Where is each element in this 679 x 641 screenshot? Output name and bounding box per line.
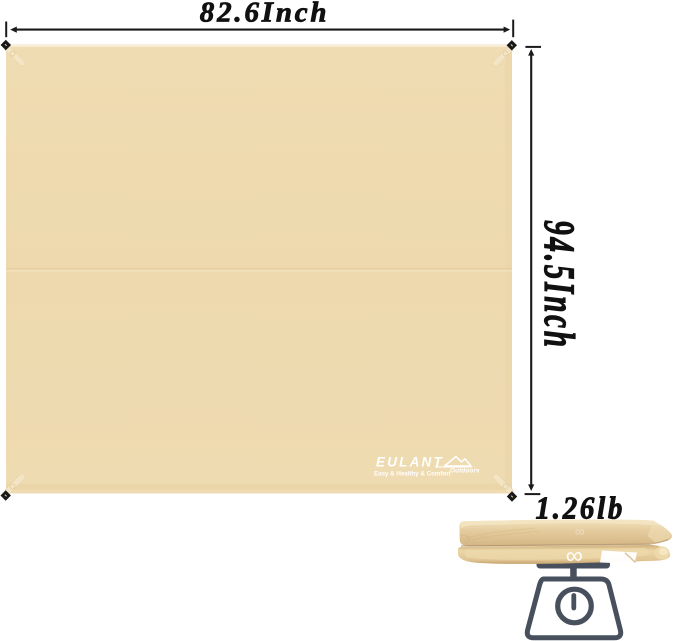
svg-text:Outdoors: Outdoors [450,468,480,475]
svg-text:EULANT: EULANT [376,455,444,470]
svg-text:Easy & Healthy & Comfort: Easy & Healthy & Comfort [374,471,451,478]
svg-text:∞: ∞ [565,542,583,570]
svg-text:82.6Inch: 82.6Inch [200,0,330,29]
svg-text:∞: ∞ [574,523,585,540]
svg-text:94.5Inch: 94.5Inch [536,220,584,350]
